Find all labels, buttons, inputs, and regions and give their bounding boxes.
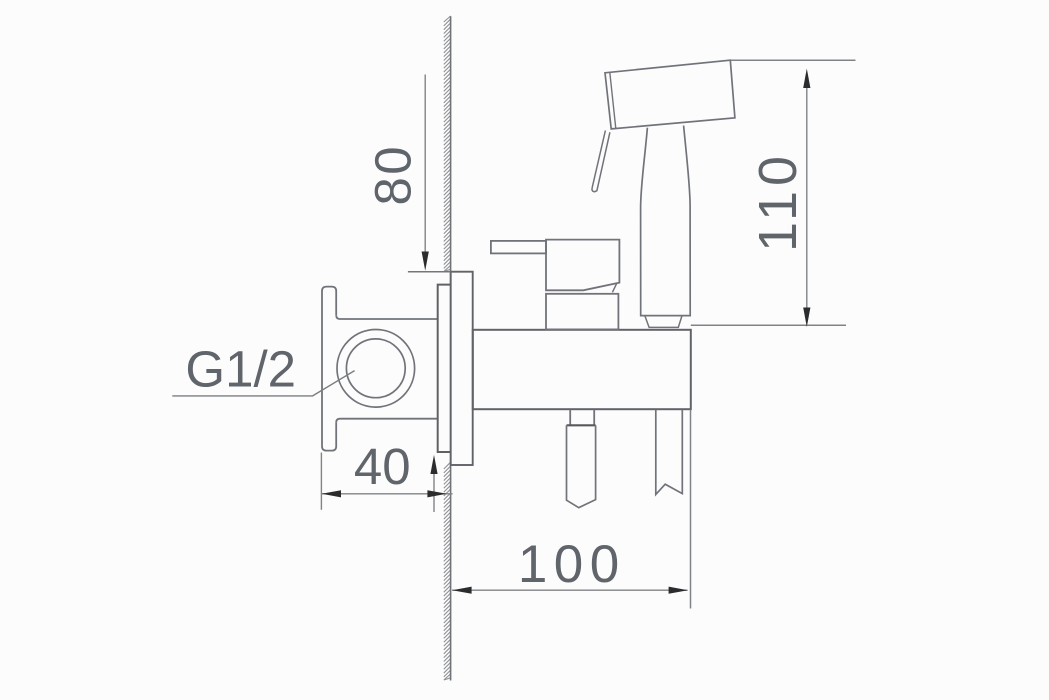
svg-text:40: 40 (354, 438, 411, 495)
svg-text:80: 80 (365, 144, 422, 206)
svg-text:110: 110 (748, 151, 808, 252)
svg-text:100: 100 (518, 535, 626, 594)
svg-text:G1/2: G1/2 (185, 341, 296, 398)
